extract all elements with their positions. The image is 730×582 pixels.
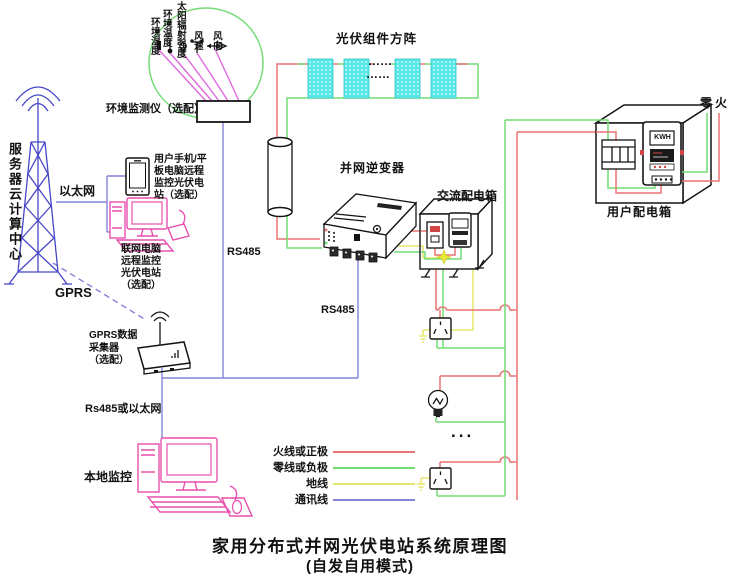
sensor-label-temperature: 环境温度 xyxy=(160,9,171,47)
page-title: 家用分布式并网光伏电站系统原理图 xyxy=(165,537,555,557)
env-monitor-label: 环境监测仪（选配） xyxy=(106,103,205,116)
rs485-left-label: RS485 xyxy=(227,246,261,259)
socket-1 xyxy=(430,318,451,339)
inverter-label: 并网逆变器 xyxy=(340,162,405,176)
loads-ellipsis: ... xyxy=(451,422,474,442)
gprs-collector-device xyxy=(138,312,190,374)
phone-note-label: 用户手机/平 板电脑远程 监控光伏电 站（选配） xyxy=(154,154,207,202)
legend-label-ground: 地线 xyxy=(272,478,328,491)
user-box-label: 用户配电箱 xyxy=(607,206,672,220)
loads xyxy=(417,318,451,490)
dc-conduit-cylinder xyxy=(268,138,292,217)
page-subtitle: (自发自用模式) xyxy=(165,558,555,575)
gprs-collector-label: GPRS数据 采集器 （选配） xyxy=(89,330,137,368)
legend-label-live: 火线或正极 xyxy=(272,446,328,459)
meter-display-text: KWH xyxy=(651,134,674,142)
user-breaker xyxy=(602,140,635,169)
schematic-canvas xyxy=(0,0,730,582)
local-pc-device xyxy=(138,438,252,516)
light-bulb xyxy=(429,391,448,417)
sensor-label-humidity: 环境湿度 xyxy=(148,17,159,55)
rs485-right-label: RS485 xyxy=(321,304,355,317)
legend-line-ground xyxy=(333,483,415,485)
pv-array-label: 光伏组件方阵 xyxy=(336,32,417,46)
sensor-label-wind-direction: 风向 xyxy=(210,31,221,50)
ac-box-label: 交流配电箱 xyxy=(437,190,497,204)
phone-device xyxy=(126,158,149,195)
sensor-wires xyxy=(159,49,239,101)
pv-ellipsis-row2: …… xyxy=(366,68,390,82)
sensor-label-radiation: 太阳辐射强度 xyxy=(174,1,185,58)
local-link-label: Rs485或以太网 xyxy=(85,403,161,416)
socket-2 xyxy=(430,468,451,489)
legend-line-comm xyxy=(333,499,415,501)
ac-breaker xyxy=(427,222,443,248)
networked-pc-label: 联网电脑 远程监控 光伏电站 （选配） xyxy=(121,244,161,292)
neutral-live-label: 零火 xyxy=(700,97,730,111)
legend-label-comm: 通讯线 xyxy=(272,494,328,507)
ethernet-label: 以太网 xyxy=(59,185,95,199)
ground-symbol-1 xyxy=(419,330,427,342)
schematic-page: 环境湿度 环境温度 太阳辐射强度 风速 风向 环境监测仪（选配） 服务器云计算中… xyxy=(0,0,730,582)
legend-label-neutral: 零线或负极 xyxy=(272,462,328,475)
legend-line-live xyxy=(333,451,415,453)
gprs-label: GPRS xyxy=(55,286,92,301)
sensor-label-wind-speed: 风速 xyxy=(191,31,202,50)
ground-symbol-2 xyxy=(417,478,425,490)
dc-ac-wires xyxy=(277,64,596,500)
server-center-label: 服务器云计算中心 xyxy=(6,142,21,262)
local-monitor-label: 本地监控 xyxy=(84,471,132,485)
legend-line-neutral xyxy=(333,467,415,469)
